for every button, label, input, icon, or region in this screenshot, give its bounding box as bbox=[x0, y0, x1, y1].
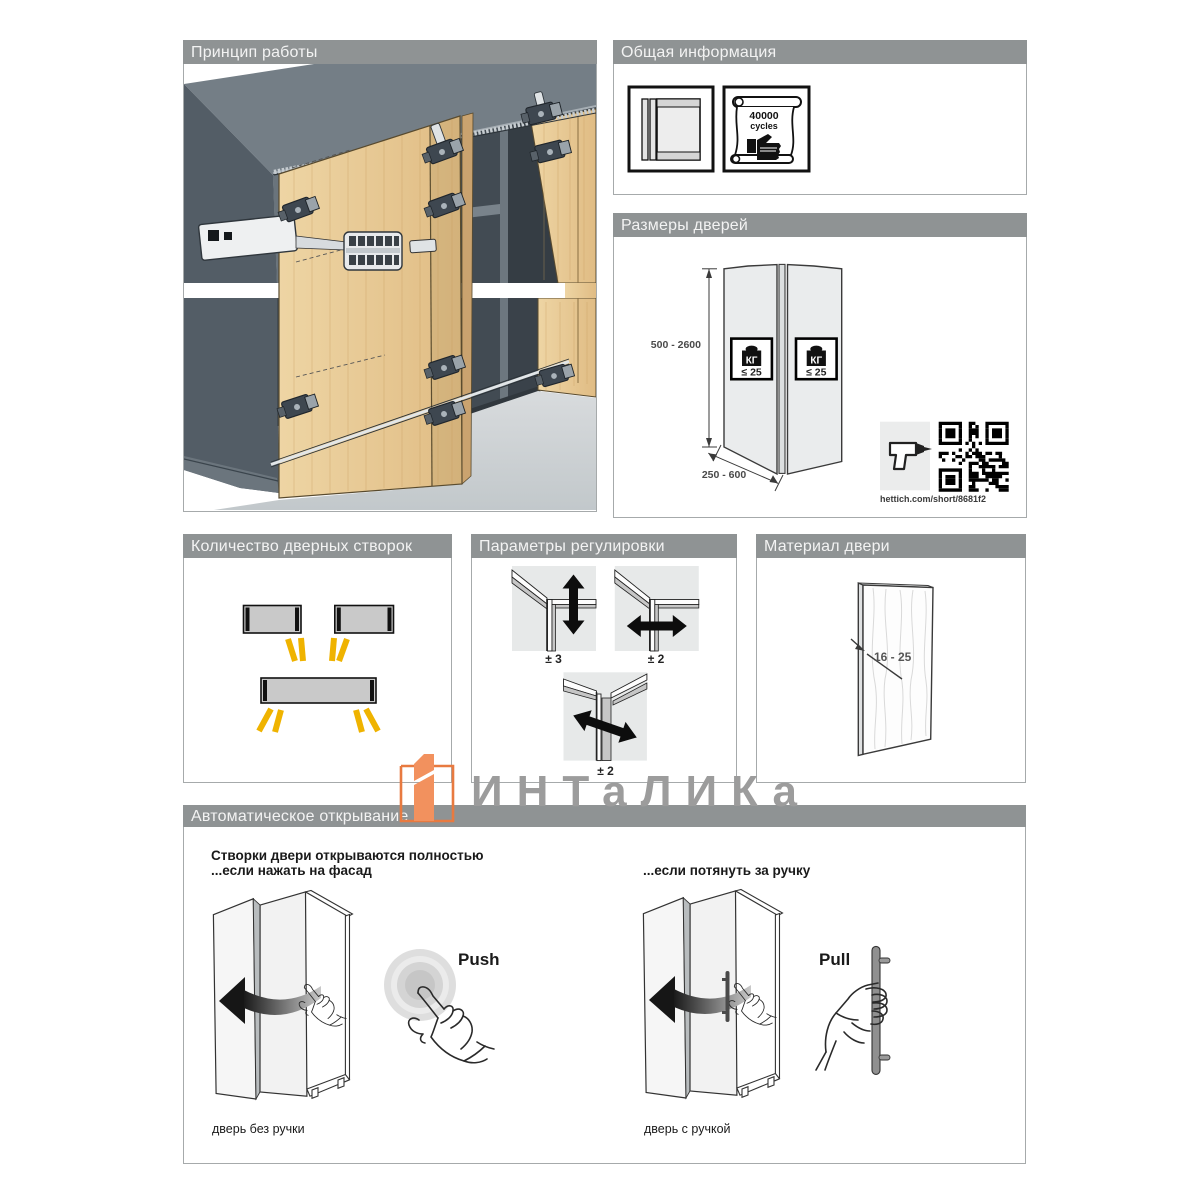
svg-text:дверь без ручки: дверь без ручки bbox=[212, 1122, 305, 1136]
svg-text:КГ: КГ bbox=[746, 356, 758, 367]
svg-text:hettich.com/short/8681f2: hettich.com/short/8681f2 bbox=[880, 494, 986, 504]
svg-text:Pull: Pull bbox=[819, 950, 850, 969]
svg-text:Push: Push bbox=[458, 950, 500, 969]
svg-text:± 2: ± 2 bbox=[648, 652, 665, 666]
svg-text:≤ 25: ≤ 25 bbox=[806, 367, 827, 379]
svg-text:500 - 2600: 500 - 2600 bbox=[651, 339, 701, 351]
svg-text:...если потянуть за ручку: ...если потянуть за ручку bbox=[643, 863, 811, 878]
svg-text:≤ 25: ≤ 25 bbox=[741, 367, 762, 379]
svg-text:дверь с ручкой: дверь с ручкой bbox=[644, 1122, 731, 1136]
svg-text:± 3: ± 3 bbox=[545, 652, 562, 666]
svg-text:250 - 600: 250 - 600 bbox=[702, 469, 747, 481]
svg-text:16 - 25: 16 - 25 bbox=[874, 650, 912, 664]
svg-text:Створки двери открываются полн: Створки двери открываются полностью bbox=[211, 848, 484, 863]
svg-text:...если нажать на фасад: ...если нажать на фасад bbox=[211, 863, 372, 878]
svg-text:КГ: КГ bbox=[810, 356, 822, 367]
svg-text:cycles: cycles bbox=[750, 121, 778, 131]
